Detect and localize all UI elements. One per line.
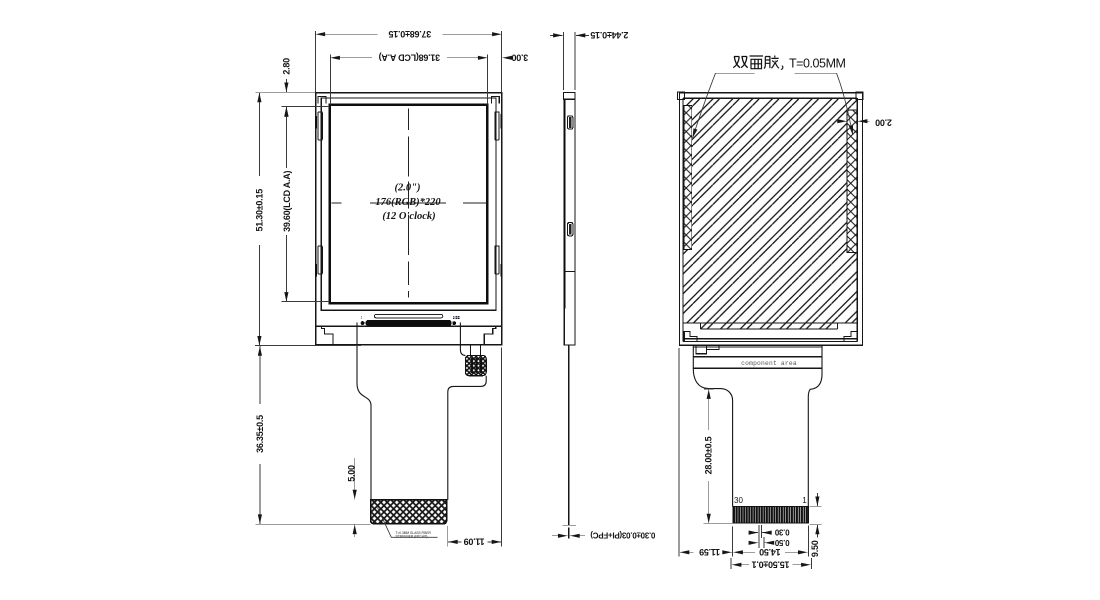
svg-text:component area: component area bbox=[741, 360, 797, 367]
svg-text:37.68±0.15: 37.68±0.15 bbox=[389, 29, 432, 39]
svg-text:0.30: 0.30 bbox=[774, 528, 789, 537]
svg-text:5.00: 5.00 bbox=[347, 465, 357, 482]
svg-text:176(RGB)*220: 176(RGB)*220 bbox=[375, 197, 441, 208]
svg-text:3.00: 3.00 bbox=[512, 52, 529, 62]
svg-text:15.50±0.1: 15.50±0.1 bbox=[752, 559, 790, 569]
svg-text:1: 1 bbox=[802, 496, 807, 505]
svg-text:11.09: 11.09 bbox=[464, 536, 485, 546]
svg-text:(2.0"): (2.0") bbox=[395, 183, 421, 194]
svg-text:14.50: 14.50 bbox=[759, 547, 781, 557]
svg-text:0.50: 0.50 bbox=[774, 538, 789, 547]
svg-text:2.44±0.15: 2.44±0.15 bbox=[590, 30, 628, 40]
svg-text:(12 O'clock): (12 O'clock) bbox=[382, 211, 435, 222]
svg-text:STIFFENER (FPC+PI): STIFFENER (FPC+PI) bbox=[396, 534, 428, 538]
svg-text:9.50: 9.50 bbox=[810, 540, 820, 557]
svg-text:2.80: 2.80 bbox=[281, 58, 291, 75]
svg-text:39.60(LCD A.A): 39.60(LCD A.A) bbox=[282, 170, 292, 231]
svg-text:0.30±0.03(PI+FPC): 0.30±0.03(PI+FPC) bbox=[590, 530, 655, 539]
svg-text:36.35±0.5: 36.35±0.5 bbox=[255, 415, 265, 453]
svg-text:2.00: 2.00 bbox=[875, 118, 892, 128]
svg-text:11.59: 11.59 bbox=[699, 547, 720, 557]
svg-text:T=0.05MM: T=0.05MM bbox=[789, 57, 846, 71]
svg-text:31.68(LCD A.A): 31.68(LCD A.A) bbox=[379, 53, 440, 63]
svg-text:30: 30 bbox=[734, 496, 743, 505]
svg-text:51.30±0.15: 51.30±0.15 bbox=[255, 189, 265, 232]
svg-text:28.00±0.5: 28.00±0.5 bbox=[704, 436, 714, 474]
